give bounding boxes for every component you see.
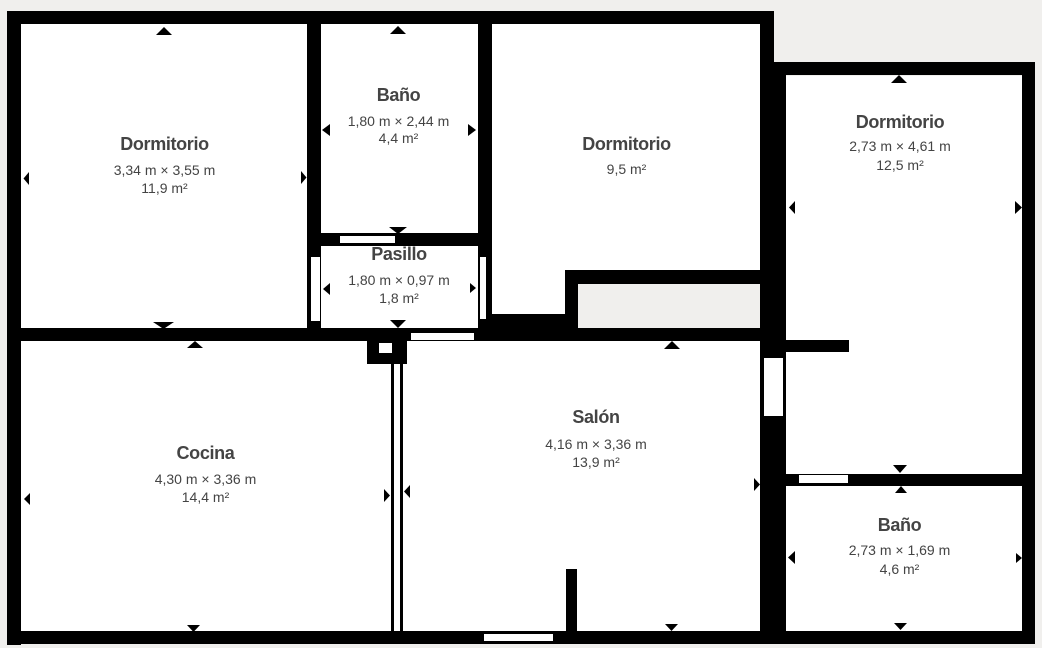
svg-text:Pasillo: Pasillo [371,244,427,264]
svg-text:Cocina: Cocina [177,443,236,463]
svg-text:2,73 m × 1,69 m: 2,73 m × 1,69 m [849,542,951,558]
svg-text:13,9 m²: 13,9 m² [572,454,620,470]
svg-text:Baño: Baño [377,85,421,105]
svg-text:4,30 m × 3,36 m: 4,30 m × 3,36 m [155,471,257,487]
svg-text:9,5 m²: 9,5 m² [607,161,647,177]
svg-text:2,73 m × 4,61 m: 2,73 m × 4,61 m [849,138,951,154]
svg-text:Dormitorio: Dormitorio [582,134,671,154]
svg-text:12,5 m²: 12,5 m² [876,157,924,173]
svg-text:4,6 m²: 4,6 m² [880,561,920,577]
svg-text:1,80 m × 0,97 m: 1,80 m × 0,97 m [348,272,450,288]
svg-text:Baño: Baño [878,515,922,535]
svg-text:Dormitorio: Dormitorio [856,112,945,132]
svg-text:1,80 m × 2,44 m: 1,80 m × 2,44 m [348,113,450,129]
svg-text:11,9 m²: 11,9 m² [141,180,188,196]
svg-text:Dormitorio: Dormitorio [120,134,209,154]
svg-text:1,8 m²: 1,8 m² [379,290,419,306]
svg-text:3,34 m × 3,55 m: 3,34 m × 3,55 m [114,162,216,178]
svg-text:14,4 m²: 14,4 m² [182,489,230,505]
svg-text:4,4 m²: 4,4 m² [379,130,419,146]
svg-text:Salón: Salón [572,407,619,427]
svg-text:4,16 m × 3,36 m: 4,16 m × 3,36 m [545,436,647,452]
